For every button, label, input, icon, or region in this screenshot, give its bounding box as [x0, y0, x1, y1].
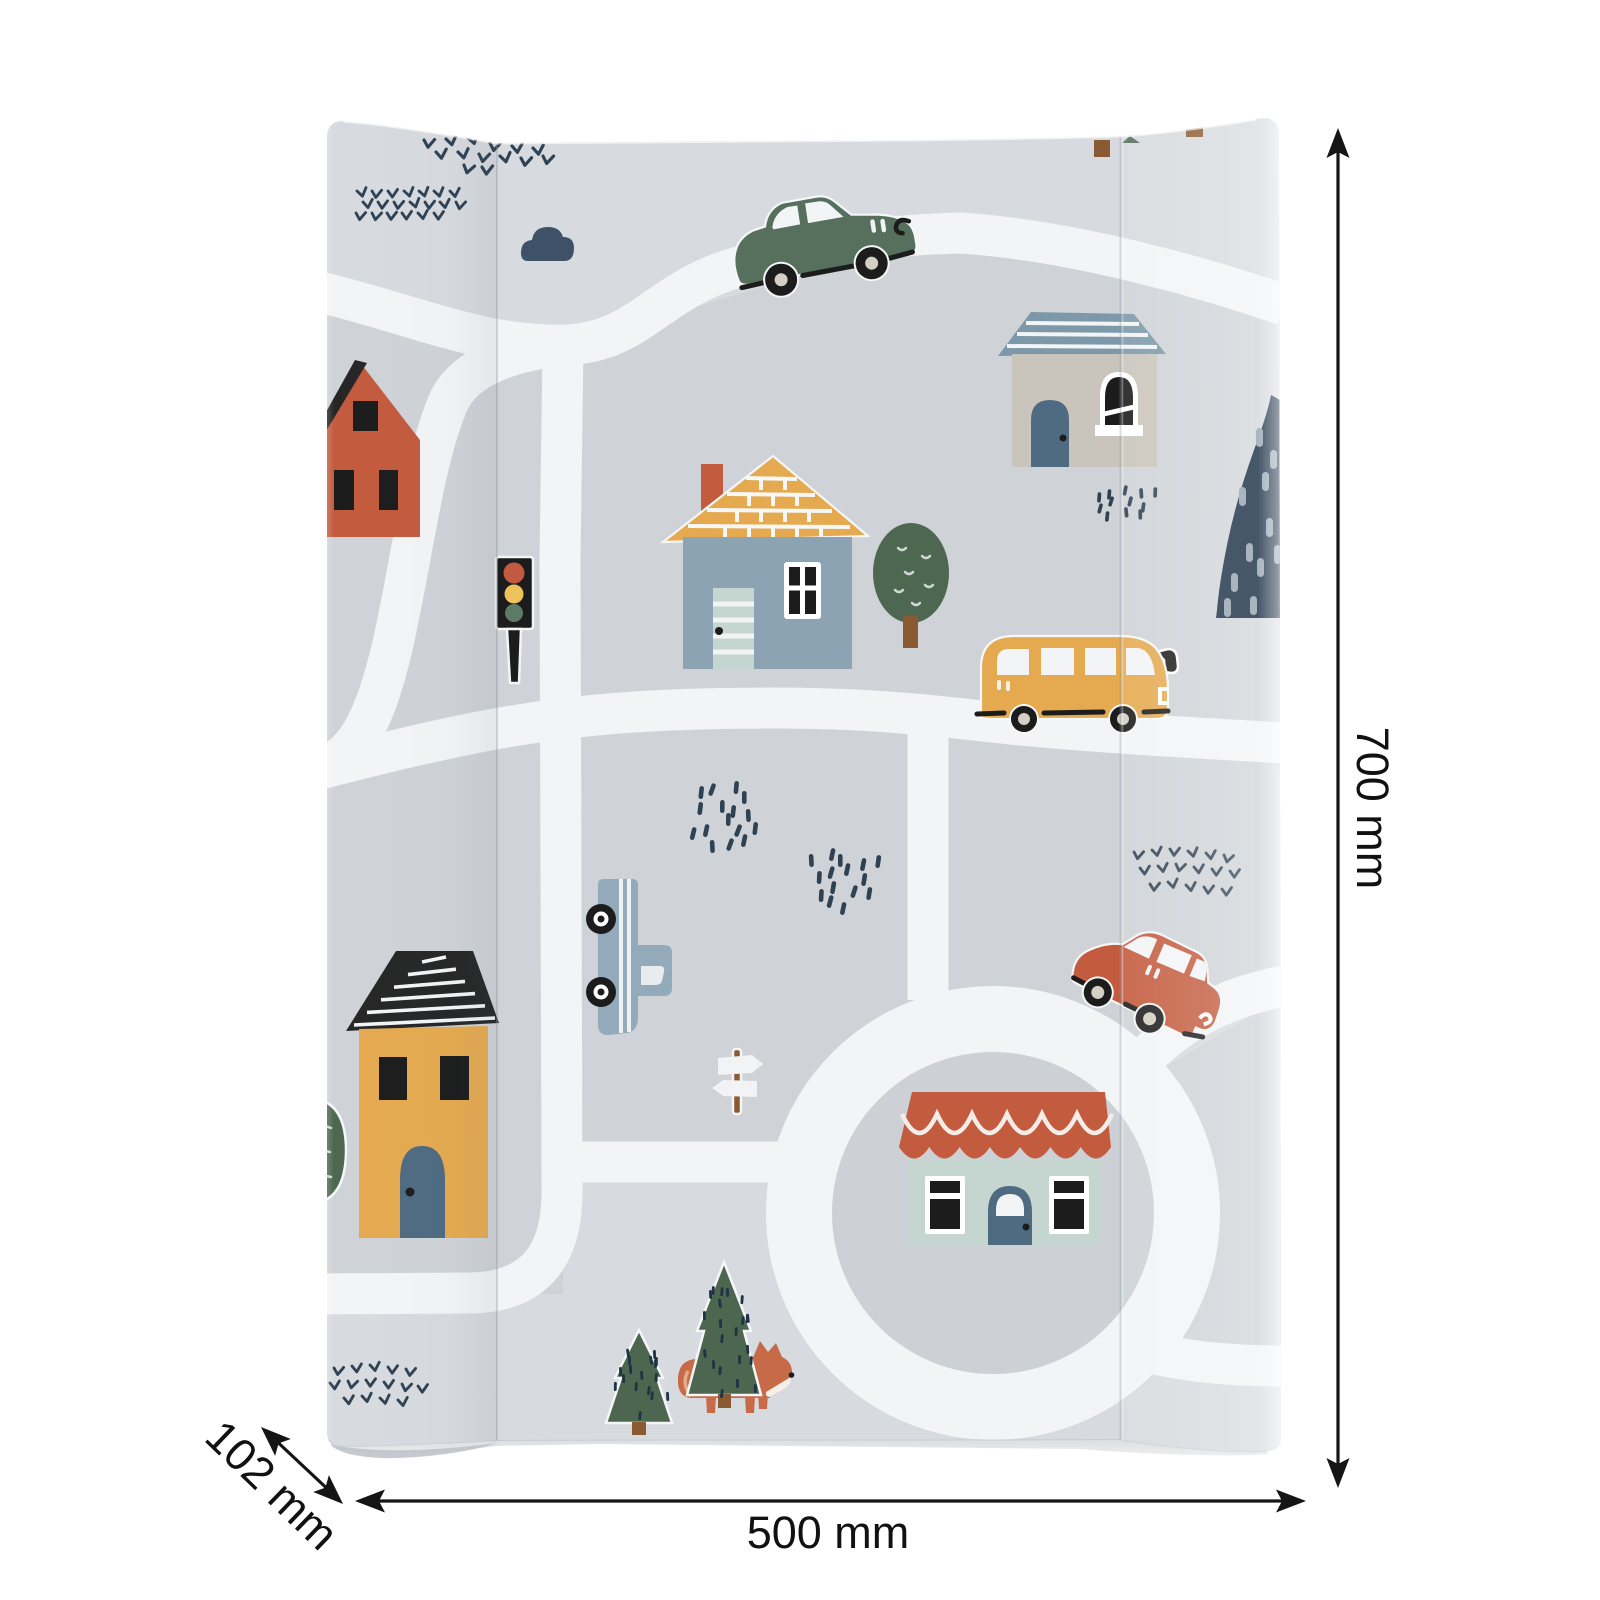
svg-text:700 mm: 700 mm [1347, 727, 1398, 890]
svg-text:500 mm: 500 mm [747, 1507, 910, 1558]
